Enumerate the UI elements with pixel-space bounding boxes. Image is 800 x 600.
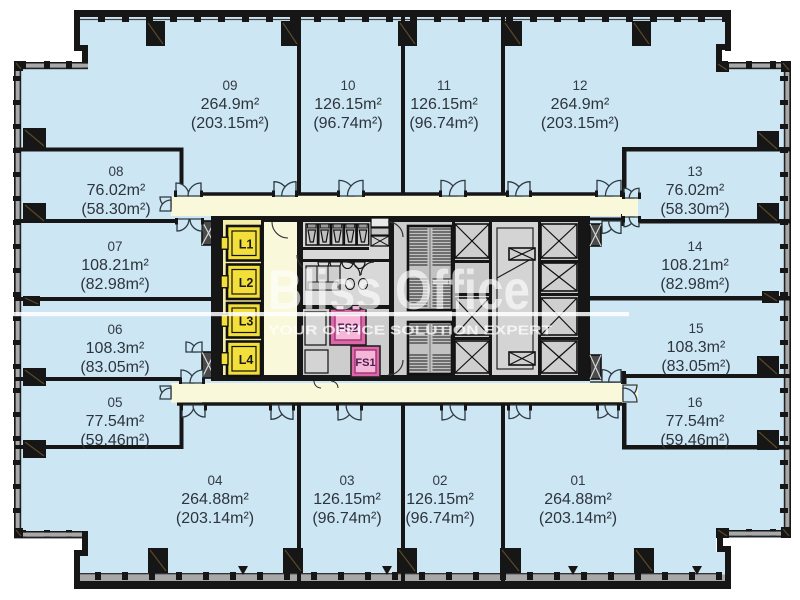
svg-text:(82.98m²): (82.98m²)	[660, 276, 729, 293]
svg-text:76.02m²: 76.02m²	[666, 182, 725, 199]
svg-text:(203.14m²): (203.14m²)	[176, 510, 254, 527]
svg-text:(82.98m²): (82.98m²)	[80, 276, 149, 293]
svg-text:01: 01	[570, 473, 585, 488]
svg-text:264.9m²: 264.9m²	[201, 96, 260, 113]
svg-text:(203.15m²): (203.15m²)	[191, 115, 269, 132]
svg-text:L3: L3	[239, 314, 254, 328]
svg-text:(83.05m²): (83.05m²)	[80, 359, 149, 376]
svg-text:108.3m²: 108.3m²	[86, 340, 145, 357]
svg-text:02: 02	[432, 473, 447, 488]
svg-text:FS1: FS1	[355, 357, 375, 369]
svg-text:108.3m²: 108.3m²	[667, 339, 726, 356]
svg-text:126.15m²: 126.15m²	[313, 491, 381, 508]
svg-text:(58.30m²): (58.30m²)	[81, 201, 150, 218]
svg-text:(203.14m²): (203.14m²)	[539, 510, 617, 527]
svg-text:07: 07	[107, 239, 122, 254]
svg-text:126.15m²: 126.15m²	[314, 96, 382, 113]
svg-text:(83.05m²): (83.05m²)	[661, 358, 730, 375]
svg-text:12: 12	[572, 78, 587, 93]
svg-text:(59.46m²): (59.46m²)	[660, 432, 729, 449]
svg-text:08: 08	[108, 164, 123, 179]
svg-text:09: 09	[222, 78, 237, 93]
svg-text:L2: L2	[239, 276, 254, 290]
svg-text:264.88m²: 264.88m²	[181, 491, 249, 508]
svg-text:77.54m²: 77.54m²	[86, 413, 145, 430]
svg-text:04: 04	[207, 473, 223, 488]
svg-text:(59.46m²): (59.46m²)	[80, 432, 149, 449]
svg-text:Bliss Office: Bliss Office	[268, 258, 530, 321]
svg-text:03: 03	[339, 473, 354, 488]
svg-text:264.9m²: 264.9m²	[551, 96, 610, 113]
svg-text:108.21m²: 108.21m²	[661, 257, 729, 274]
svg-text:13: 13	[687, 164, 702, 179]
svg-text:(58.30m²): (58.30m²)	[660, 201, 729, 218]
svg-text:126.15m²: 126.15m²	[410, 96, 478, 113]
svg-text:16: 16	[687, 395, 702, 410]
svg-text:06: 06	[107, 322, 122, 337]
svg-text:11: 11	[437, 78, 451, 93]
svg-text:YOUR OFFICE SOLUTION EXPERT: YOUR OFFICE SOLUTION EXPERT	[268, 323, 552, 338]
svg-text:(96.74m²): (96.74m²)	[409, 115, 478, 132]
svg-text:05: 05	[107, 395, 122, 410]
svg-text:14: 14	[687, 239, 703, 254]
svg-text:77.54m²: 77.54m²	[666, 413, 725, 430]
svg-text:L1: L1	[239, 237, 254, 251]
svg-text:(96.74m²): (96.74m²)	[312, 510, 381, 527]
svg-text:264.88m²: 264.88m²	[544, 491, 612, 508]
svg-text:(203.15m²): (203.15m²)	[541, 115, 619, 132]
svg-text:15: 15	[688, 321, 703, 336]
svg-text:126.15m²: 126.15m²	[406, 491, 474, 508]
svg-text:(96.74m²): (96.74m²)	[313, 115, 382, 132]
svg-text:10: 10	[340, 78, 355, 93]
svg-text:(96.74m²): (96.74m²)	[405, 510, 474, 527]
svg-text:108.21m²: 108.21m²	[81, 257, 149, 274]
svg-text:76.02m²: 76.02m²	[87, 182, 146, 199]
svg-text:L4: L4	[239, 353, 254, 367]
